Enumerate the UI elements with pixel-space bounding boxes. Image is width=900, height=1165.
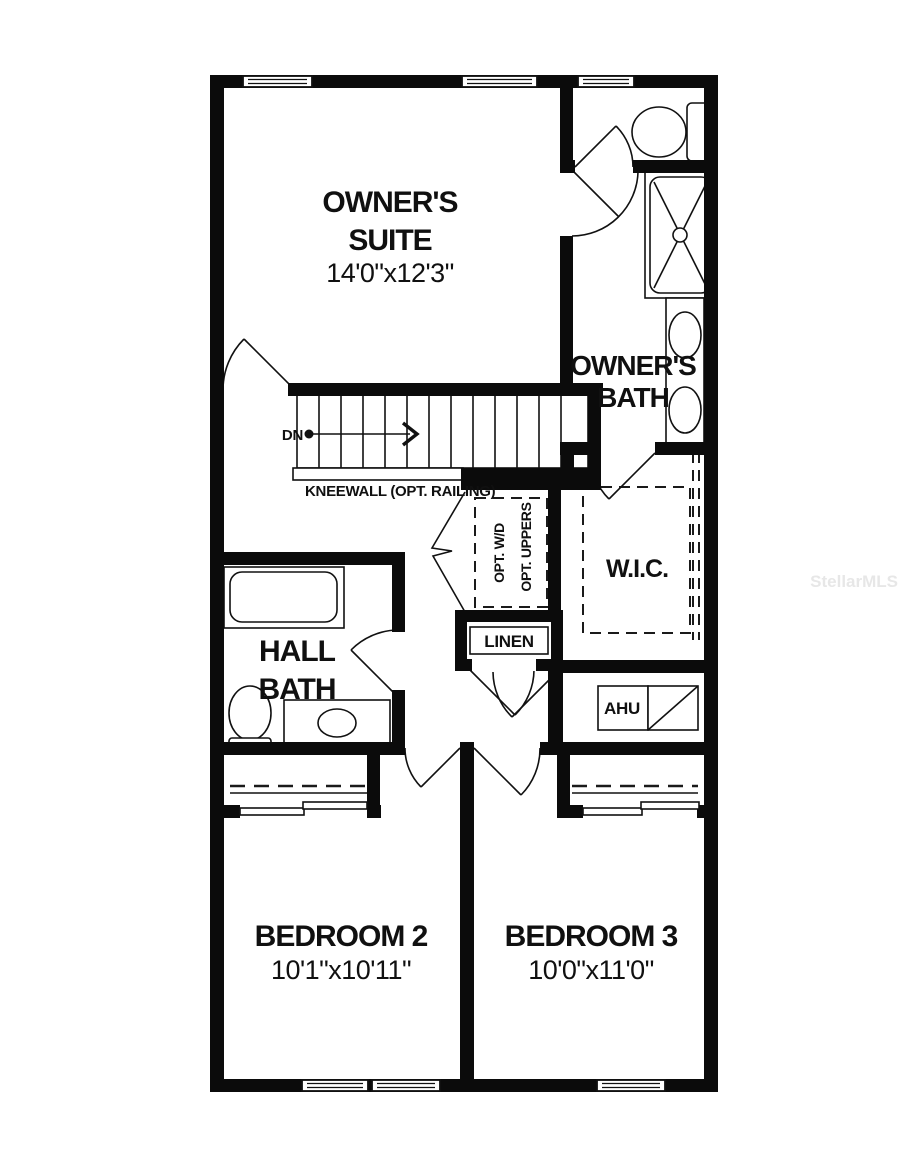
window-bottom-3	[597, 1080, 665, 1091]
bedroom3-label: BEDROOM 3	[505, 920, 678, 953]
floor-plan-drawing: OWNER'S SUITE 14'0"x12'3" OWNER'S BATH W…	[0, 0, 900, 1165]
owners-suite-dims: 14'0"x12'3"	[326, 258, 454, 288]
opt-wd-label: OPT. W/D	[491, 523, 507, 583]
hall-bath-label-1: HALL	[259, 635, 336, 668]
bathtub-icon	[224, 567, 344, 628]
owners-suite-label-1: OWNER'S	[322, 186, 457, 219]
window-top-1	[243, 76, 312, 87]
kneewall-label: KNEEWALL (OPT. RAILING)	[305, 483, 496, 500]
ahu-label: AHU	[604, 699, 640, 718]
window-top-2	[462, 76, 537, 87]
owners-suite-label-2: SUITE	[348, 224, 431, 257]
bedroom3-dims: 10'0"x11'0"	[528, 955, 654, 985]
kneewall-strip	[293, 468, 463, 480]
bedroom2-label: BEDROOM 2	[255, 920, 428, 953]
owners-bath-label-2: BATH	[597, 382, 669, 413]
bedroom2-dims: 10'1"x10'11"	[271, 955, 411, 985]
window-top-3	[578, 76, 634, 87]
window-bottom-1	[302, 1080, 368, 1091]
window-bottom-2	[372, 1080, 440, 1091]
hall-bath-label-2: BATH	[258, 673, 335, 706]
staircase	[297, 392, 588, 468]
watermark: StellarMLS	[810, 572, 898, 591]
owners-bath-label-1: OWNER'S	[570, 350, 696, 381]
wic-label: W.I.C.	[606, 555, 668, 583]
opt-uppers-label: OPT. UPPERS	[518, 502, 534, 591]
linen-label: LINEN	[484, 632, 534, 651]
dn-label: DN	[282, 427, 303, 444]
floor-plan-page: OWNER'S SUITE 14'0"x12'3" OWNER'S BATH W…	[0, 0, 900, 1165]
toilet-icon-owners	[632, 103, 712, 161]
vanity-hall-bath	[284, 700, 390, 744]
